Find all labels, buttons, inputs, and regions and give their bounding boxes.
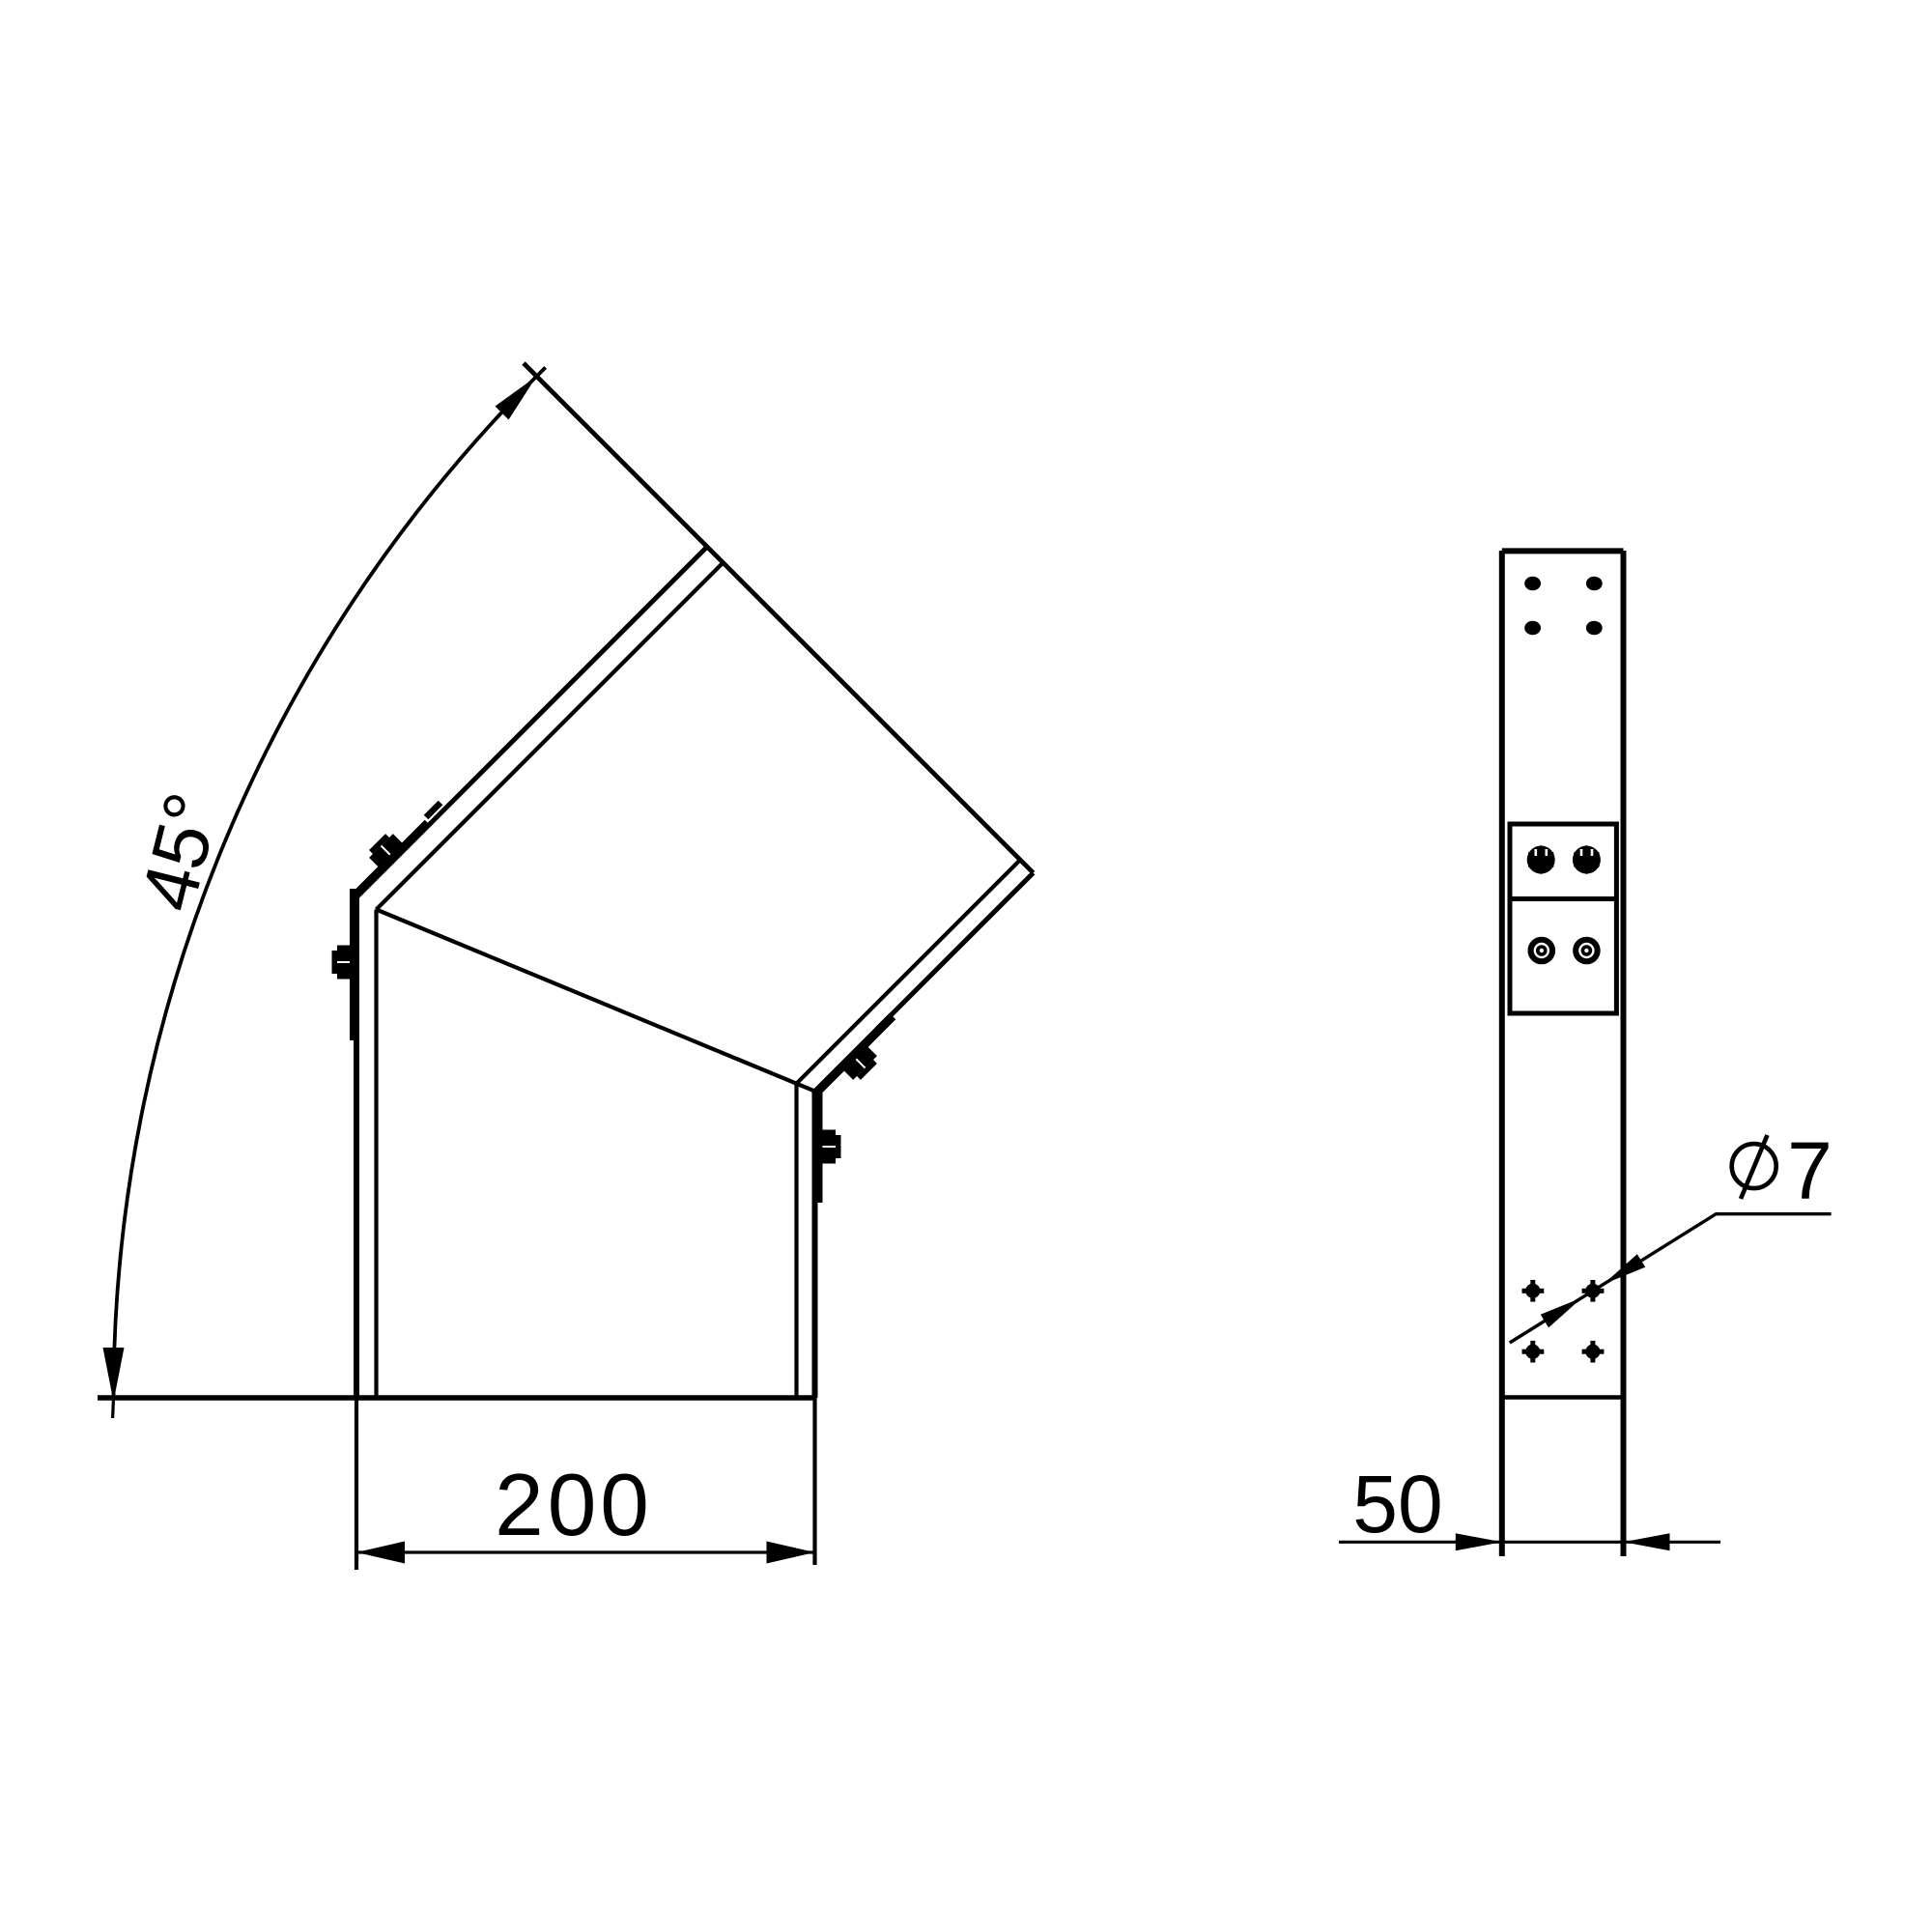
svg-text:7: 7 [1787,1125,1833,1216]
svg-text:50: 50 [1352,1459,1442,1549]
svg-text:200: 200 [495,1457,653,1554]
